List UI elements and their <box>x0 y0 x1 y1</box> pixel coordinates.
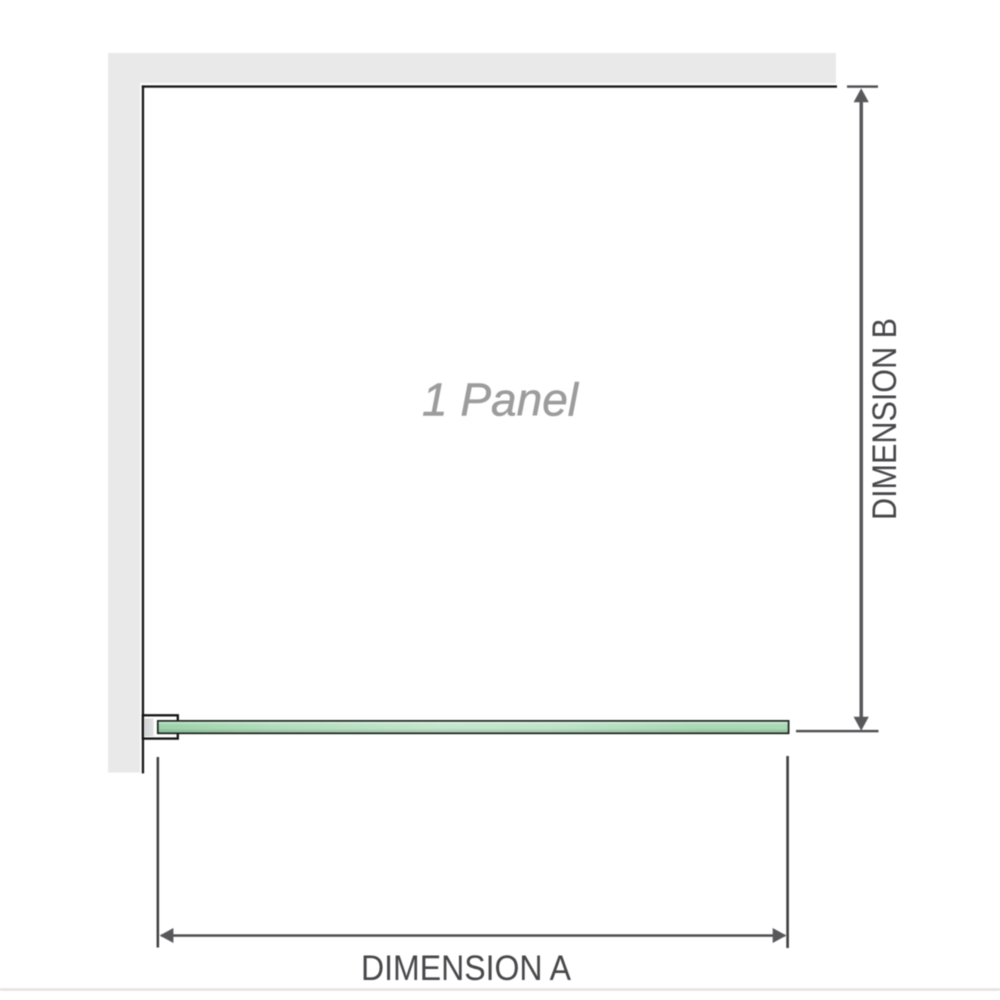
svg-text:1 Panel: 1 Panel <box>422 373 580 425</box>
svg-text:DIMENSION A: DIMENSION A <box>361 949 572 988</box>
svg-text:DIMENSION B: DIMENSION B <box>865 318 903 520</box>
